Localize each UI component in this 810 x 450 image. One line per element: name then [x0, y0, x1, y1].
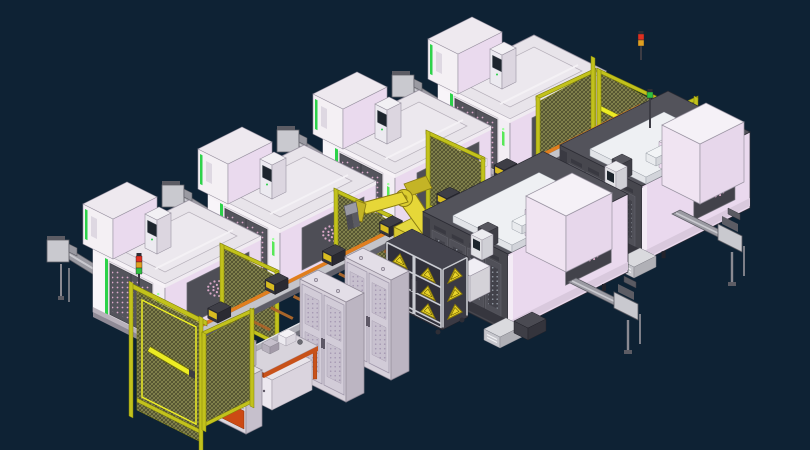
- cad-viewport[interactable]: [0, 0, 810, 450]
- cad-render-stage: [0, 0, 810, 450]
